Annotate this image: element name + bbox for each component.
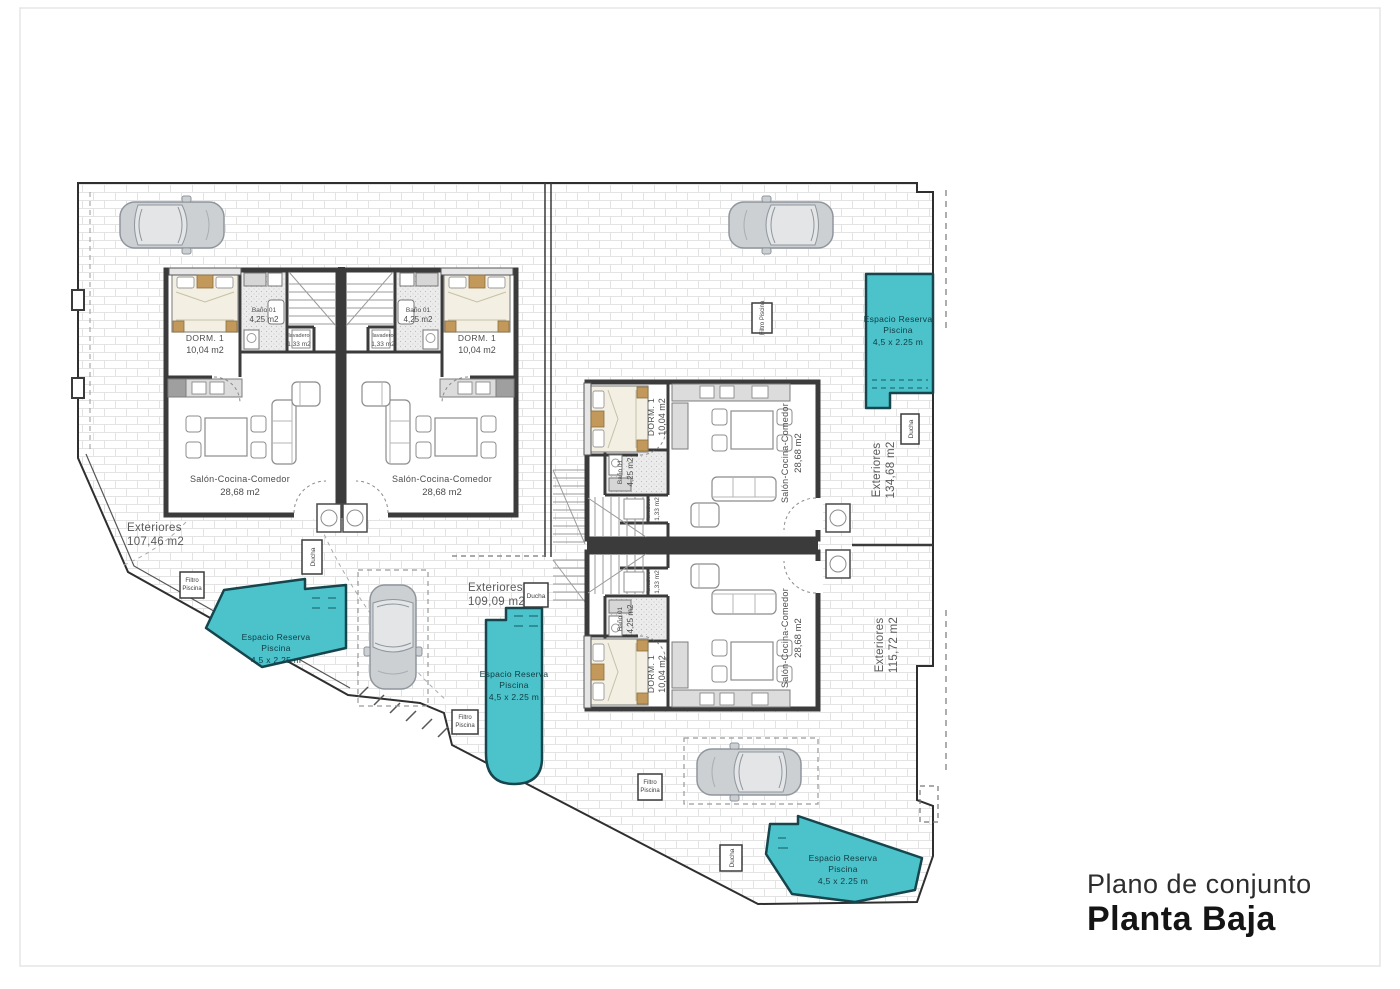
living-room-area: 28,68 m2	[793, 618, 804, 658]
car-top-left	[120, 196, 224, 254]
site-plan-page: Filtro Piscina Filtro Piscina Filtro Pis…	[0, 0, 1400, 989]
pool-reserve-label: Piscina	[499, 680, 529, 690]
bedroom-area: 10,04 m2	[657, 398, 667, 436]
pool-reserve-label: Espacio Reserva	[480, 669, 549, 679]
shower-box: Ducha	[524, 583, 548, 607]
bedroom-label: DORM. 1	[646, 398, 656, 436]
bedroom-area: 10,04 m2	[458, 345, 496, 355]
laundry-label: lavadero	[646, 498, 652, 519]
pool-reserve-label: Piscina	[883, 325, 913, 335]
laundry-label: lavadero	[288, 333, 309, 339]
pool-filter-label: Piscina	[455, 723, 475, 729]
house-block-left	[166, 267, 516, 532]
pool-filter-box: Filtro Piscina	[752, 300, 772, 335]
party-wall	[587, 539, 818, 552]
living-room-area: 28,68 m2	[422, 487, 462, 498]
bedroom-area: 10,04 m2	[186, 345, 224, 355]
pool-left	[206, 579, 346, 667]
living-room-area: 28,68 m2	[793, 433, 804, 473]
pool-reserve-label: Espacio Reserva	[809, 853, 878, 863]
boundary-post	[72, 290, 84, 310]
plan-subtitle: Plano de conjunto	[1087, 869, 1312, 899]
shower-label: Ducha	[310, 547, 317, 566]
exterior-area: 109,09 m2	[468, 596, 525, 608]
pool-filter-label: Filtro Piscina	[760, 300, 766, 335]
shower-box: Ducha	[901, 414, 919, 444]
living-room-label: Salón-Cocina-Comedor	[780, 588, 790, 688]
bathroom-area: 4,25 m2	[626, 604, 635, 633]
bedroom-label: DORM. 1	[646, 655, 656, 693]
porch-box	[343, 504, 367, 532]
exterior-label: Exteriores	[871, 443, 883, 498]
pool-reserve-label: Espacio Reserva	[864, 314, 933, 324]
bedroom-label: DORM. 1	[186, 333, 224, 343]
living-room-area: 28,68 m2	[220, 487, 260, 498]
pool-reserve-label: Espacio Reserva	[242, 632, 311, 642]
bathroom-area: 4,25 m2	[404, 315, 433, 324]
shower-label: Ducha	[729, 848, 736, 867]
bathroom-label: Baño 01	[617, 460, 624, 485]
pool-filter-box: Filtro Piscina	[638, 774, 662, 800]
porch-box	[826, 504, 850, 532]
bathroom-label: Baño 01	[617, 607, 624, 632]
pool-filter-label: Piscina	[182, 586, 202, 592]
shower-box: Ducha	[302, 540, 322, 574]
pool-reserve-label: Piscina	[261, 643, 291, 653]
shower-label: Ducha	[908, 419, 915, 438]
shower-box: Ducha	[720, 845, 742, 871]
plan-title: Planta Baja	[1087, 900, 1276, 938]
laundry-area: 1,33 m2	[654, 570, 661, 594]
laundry-area: 1,33 m2	[371, 341, 395, 348]
title-block: Plano de conjunto Planta Baja	[1087, 869, 1312, 938]
pool-size-label: 4,5 x 2.25 m	[489, 692, 539, 702]
bathroom-area: 4,25 m2	[250, 315, 279, 324]
laundry-label: lavadero	[646, 571, 652, 592]
porch-box	[826, 550, 850, 578]
living-room-label: Salón-Cocina-Comedor	[190, 474, 290, 484]
laundry-area: 1,33 m2	[287, 341, 311, 348]
shower-label: Ducha	[527, 593, 546, 600]
porch-box	[317, 504, 341, 532]
party-wall	[338, 267, 345, 518]
exterior-label: Exteriores	[874, 618, 886, 673]
car-top-right	[729, 196, 833, 254]
pool-size-label: 4,5 x 2.25 m	[873, 337, 923, 347]
pool-filter-label: Piscina	[640, 788, 660, 794]
exterior-label: Exteriores	[468, 582, 523, 594]
bedroom-label: DORM. 1	[458, 333, 496, 343]
house-block-right	[584, 382, 850, 709]
floor-plan-canvas: Filtro Piscina Filtro Piscina Filtro Pis…	[0, 0, 1400, 989]
exterior-area: 107,46 m2	[127, 536, 184, 548]
bathroom-area: 4,25 m2	[626, 457, 635, 486]
pool-size-label: 4,5 x 2.25 m	[251, 655, 301, 665]
exterior-area: 115,72 m2	[888, 617, 900, 673]
pool-reserve-label: Piscina	[828, 864, 858, 874]
exterior-label: Exteriores	[127, 522, 182, 534]
bathroom-label: Baño 01	[406, 307, 431, 314]
laundry-area: 1,33 m2	[654, 497, 661, 521]
pool-filter-label: Filtro	[458, 715, 472, 721]
boundary-post	[72, 378, 84, 398]
pool-filter-box: Filtro Piscina	[180, 572, 204, 598]
car-center	[364, 585, 422, 689]
bathroom-label: Baño 01	[252, 307, 277, 314]
pool-size-label: 4,5 x 2.25 m	[818, 876, 868, 886]
car-bottom	[697, 743, 801, 801]
bedroom-area: 10,04 m2	[657, 655, 667, 693]
pool-filter-label: Filtro	[185, 578, 199, 584]
living-room-label: Salón-Cocina-Comedor	[780, 403, 790, 503]
laundry-label: lavadero	[372, 333, 393, 339]
exterior-area: 134,68 m2	[885, 441, 897, 498]
pool-filter-box: Filtro Piscina	[452, 710, 478, 734]
pool-filter-label: Filtro	[643, 780, 657, 786]
living-room-label: Salón-Cocina-Comedor	[392, 474, 492, 484]
